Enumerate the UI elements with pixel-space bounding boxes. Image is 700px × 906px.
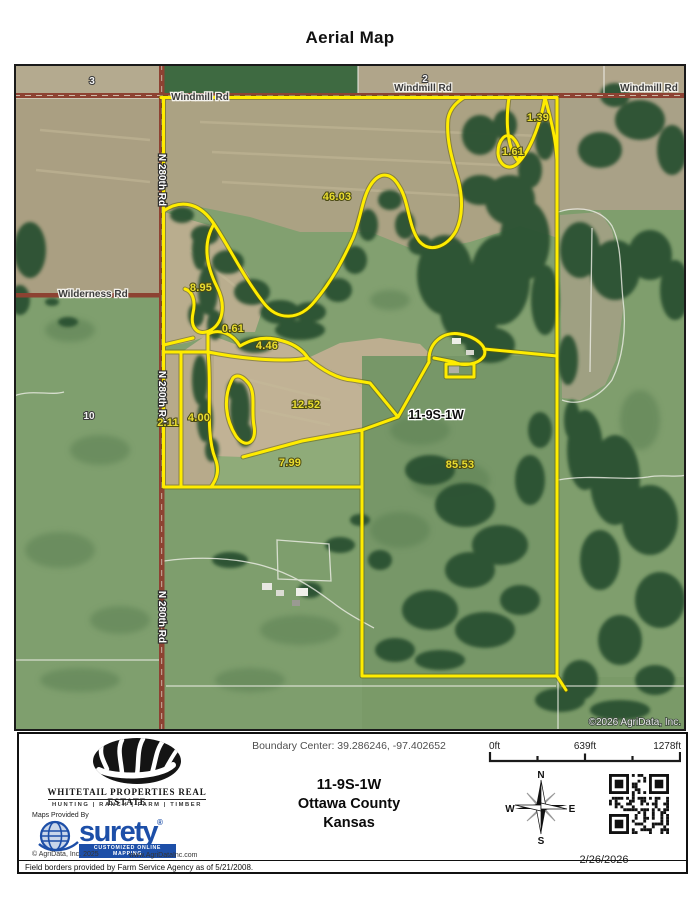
whitetail-antler-logo	[47, 736, 227, 786]
whitetail-tagline: HUNTING | RANCH | FARM | TIMBER	[27, 802, 227, 808]
section-number-2: 2	[422, 74, 428, 85]
road-label-wilderness: Wilderness Rd	[58, 289, 127, 300]
aerial-map-image: Windmill Rd Windmill Rd Windmill Rd Wild…	[14, 64, 686, 731]
boundary-center-text: Boundary Center: 39.286246, -97.402652	[229, 740, 469, 752]
road-label-n280th-3: N 280th Rd	[156, 591, 167, 643]
surety-website: www.AgriDataInc.com	[129, 852, 197, 859]
parcel-acreage-label: 0.61	[222, 323, 244, 335]
compass-e-label: E	[569, 804, 576, 815]
compass-s-label: S	[538, 836, 545, 847]
parcel-acreage-label: 4.00	[188, 412, 210, 424]
township-map-label: 11-9S-1W	[408, 408, 464, 422]
surety-registered-mark: ®	[157, 818, 163, 827]
section-number-3: 3	[89, 76, 95, 87]
page-title: Aerial Map	[0, 28, 700, 48]
compass-n-label: N	[537, 770, 544, 781]
scale-middle-label: 639ft	[574, 741, 596, 752]
aerial-map-page: Aerial Map	[0, 0, 700, 906]
surety-wordmark: surety	[79, 816, 157, 848]
parcel-acreage-label: 2.11	[157, 417, 179, 429]
county-text: Ottawa County	[229, 795, 469, 814]
whitetail-divider	[48, 799, 206, 800]
parcel-acreage-label: 46.03	[323, 191, 352, 203]
aerial-imagery: Windmill Rd Windmill Rd Windmill Rd Wild…	[14, 64, 686, 731]
road-label-n280th-1: N 280th Rd	[156, 154, 167, 206]
scale-bar: 0ft 639ft 1278ft	[481, 738, 681, 764]
road-label-n280th-2: N 280th Rd	[156, 371, 167, 423]
state-text: Kansas	[229, 814, 469, 833]
parcel-acreage-label: 4.46	[256, 340, 278, 352]
parcel-acreage-label: 8.95	[190, 282, 212, 294]
scale-end-label: 1278ft	[653, 741, 681, 752]
surety-globe-icon	[35, 820, 79, 854]
surety-copyright: © AgriData, Inc. 2025	[32, 851, 99, 858]
road-label-windmill-3: Windmill Rd	[620, 83, 678, 94]
parcel-acreage-label: 7.99	[279, 457, 301, 469]
compass-rose-icon: N S W E	[504, 769, 578, 849]
footer-panel: WHITETAIL PROPERTIES REAL ESTATE HUNTING…	[17, 732, 688, 874]
section-number-10: 10	[83, 411, 95, 422]
parcel-acreage-label: 1.61	[502, 146, 524, 158]
parcel-acreage-label: 1.39	[527, 112, 549, 124]
qr-code	[609, 774, 669, 834]
disclaimer-text: Field borders provided by Farm Service A…	[25, 863, 253, 872]
compass-w-label: W	[505, 804, 515, 815]
road-label-windmill-1: Windmill Rd	[171, 92, 229, 103]
parcel-acreage-label: 85.53	[446, 459, 475, 471]
parcel-acreage-label: 12.52	[292, 399, 321, 411]
scale-start-label: 0ft	[489, 741, 500, 752]
map-copyright: ©2026 AgriData, Inc.	[589, 717, 681, 728]
township-text: 11-9S-1W	[229, 776, 469, 795]
